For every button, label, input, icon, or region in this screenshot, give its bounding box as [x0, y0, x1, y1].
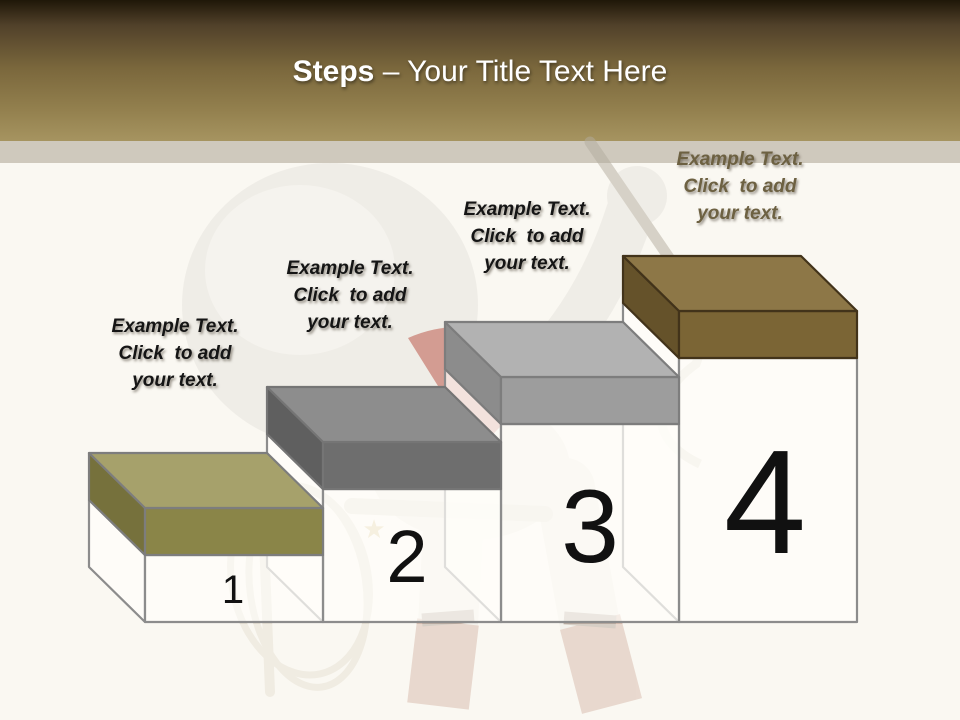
step-3-cap-front	[501, 377, 679, 424]
step-1-box	[89, 453, 323, 622]
step-1-number: 1	[222, 570, 244, 610]
step-2-number: 2	[386, 520, 427, 594]
step-2-label[interactable]: Example Text. Click to add your text.	[260, 255, 440, 336]
step-2-cap-front	[323, 442, 501, 489]
step-4-number: 4	[724, 429, 806, 577]
step-3-label[interactable]: Example Text. Click to add your text.	[437, 196, 617, 277]
step-3-number: 3	[561, 475, 619, 579]
watermark-fade	[0, 624, 960, 720]
step-4-cap-front	[679, 311, 857, 358]
slide-canvas: Steps – Your Title Text Here ★	[0, 0, 960, 720]
step-1-cap-front	[145, 508, 323, 555]
step-1-label[interactable]: Example Text. Click to add your text.	[85, 313, 265, 394]
step-4-label[interactable]: Example Text. Click to add your text.	[650, 146, 830, 227]
